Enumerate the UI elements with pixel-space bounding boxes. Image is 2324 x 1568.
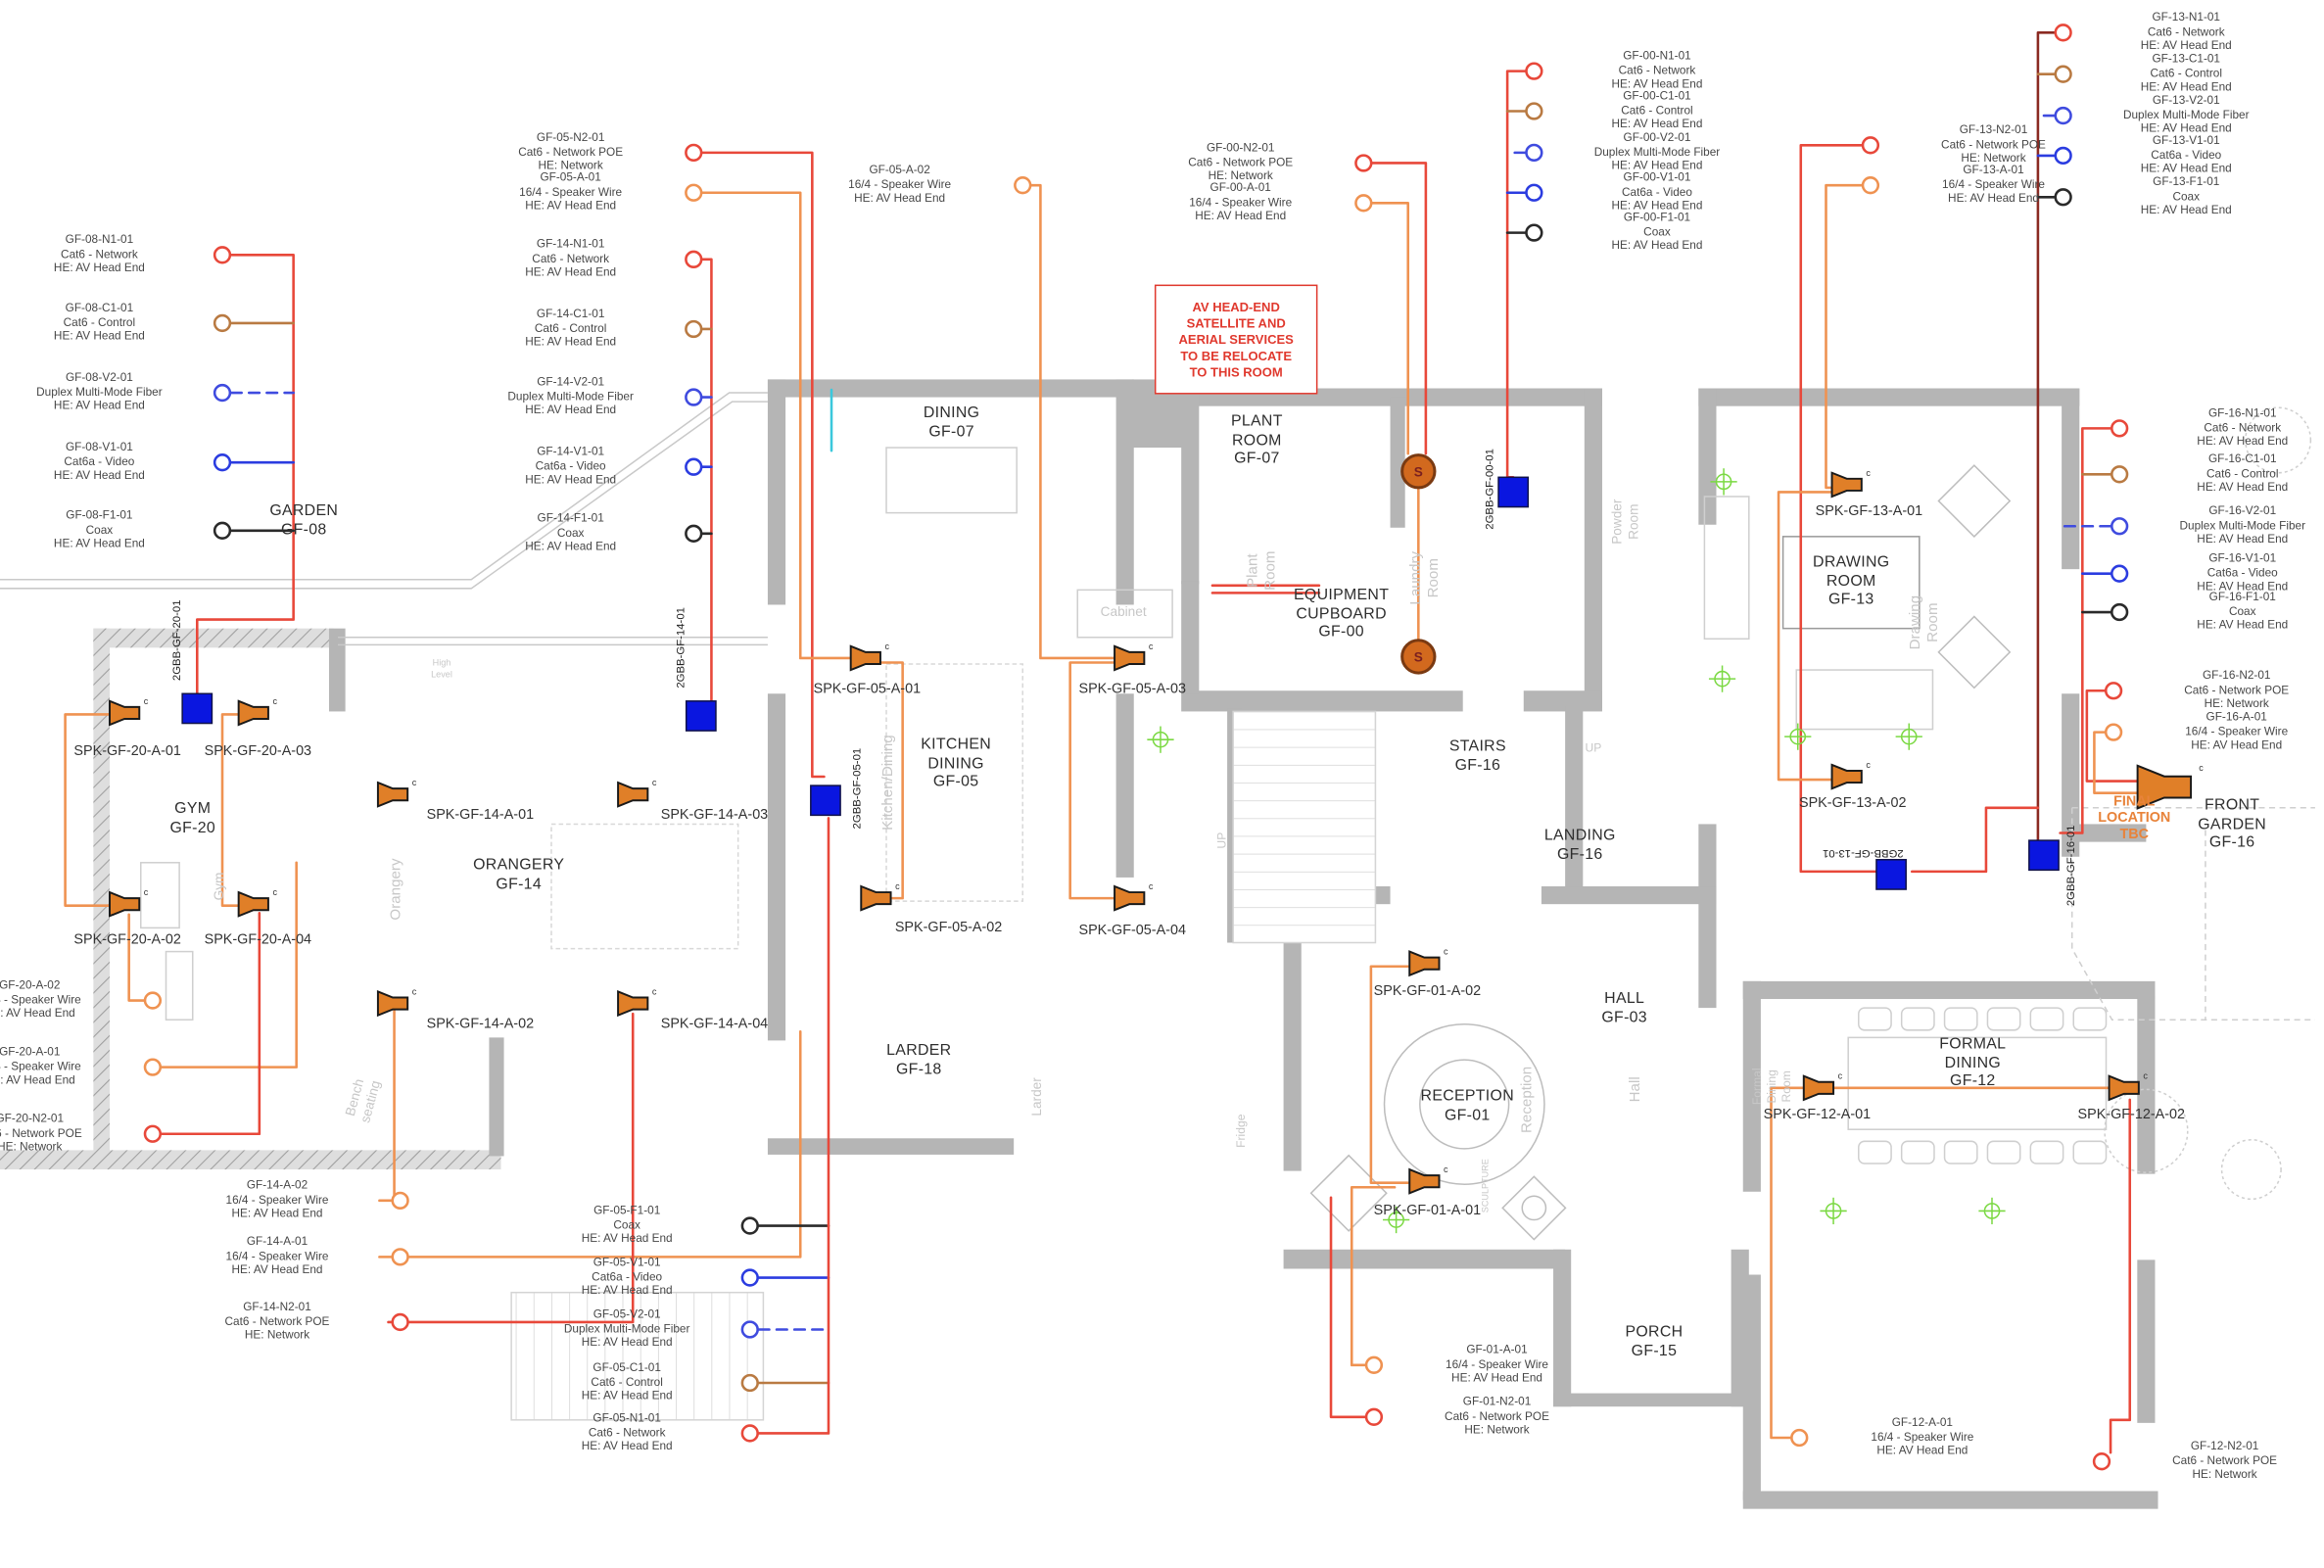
- room-label-line: GF-07: [1231, 450, 1283, 468]
- callout-dest: HE: AV Head End: [0, 1073, 141, 1088]
- speaker-label: SPK-GF-20-A-04: [205, 931, 311, 948]
- callout-id: GF-00-V1-01: [1545, 170, 1768, 185]
- cable-callout: GF-00-F1-01CoaxHE: AV Head End: [1545, 211, 1768, 254]
- room-label-line: GF-01: [1421, 1106, 1514, 1124]
- callout-cable: Duplex Multi-Mode Fiber: [516, 1321, 738, 1336]
- room-label: RECEPTIONGF-01: [1421, 1087, 1514, 1124]
- cable-callout: GF-14-F1-01CoaxHE: AV Head End: [459, 511, 682, 554]
- room-label: PLANTROOMGF-07: [1231, 412, 1283, 468]
- room-label: DININGGF-07: [924, 404, 979, 441]
- cable-callout: GF-01-A-0116/4 - Speaker WireHE: AV Head…: [1386, 1343, 1608, 1386]
- ghost-label-line: Dining: [1765, 1068, 1779, 1105]
- room-label-line: GYM: [169, 799, 215, 818]
- ghost-label-line: Room: [1262, 550, 1280, 590]
- speaker-label: SPK-GF-05-A-02: [895, 920, 1002, 936]
- callout-cable: 16/4 - Speaker Wire: [459, 185, 682, 200]
- cable-callout: GF-05-F1-01CoaxHE: AV Head End: [516, 1204, 738, 1247]
- room-label-line: ROOM: [1231, 431, 1283, 450]
- callout-id: GF-00-N1-01: [1545, 49, 1768, 64]
- speaker-label: SPK-GF-14-A-02: [427, 1016, 534, 1032]
- cable-callout: GF-13-A-0116/4 - Speaker WireHE: AV Head…: [1882, 163, 2105, 206]
- ghost-label-line: Drawing: [1908, 595, 1925, 650]
- room-label-line: DINING: [921, 754, 991, 773]
- room-label-line: LANDING: [1544, 827, 1616, 845]
- callout-cable: Cat6 - Control: [516, 1375, 738, 1390]
- callout-cable: Coax: [2075, 189, 2298, 204]
- ghost-room-label: Kitchen/Dining: [880, 735, 898, 831]
- keypad-panel-label: 2GBB-GF-16-01: [2063, 825, 2077, 906]
- callout-cable: Coax: [2131, 604, 2324, 619]
- ghost-label-line: High: [431, 658, 452, 670]
- cable-callout: GF-12-A-0116/4 - Speaker WireHE: AV Head…: [1811, 1415, 2033, 1458]
- callout-id: GF-16-F1-01: [2131, 590, 2324, 604]
- callout-dest: HE: AV Head End: [0, 261, 211, 276]
- callout-cable: Coax: [1545, 224, 1768, 239]
- callout-dest: HE: AV Head End: [516, 1232, 738, 1247]
- callout-id: GF-12-N2-01: [2113, 1440, 2324, 1454]
- callout-dest: HE: AV Head End: [1129, 210, 1352, 224]
- room-label-line: CUPBOARD: [1294, 604, 1389, 623]
- room-label-line: HALL: [1601, 989, 1647, 1008]
- callout-cable: Cat6 - Control: [2075, 66, 2298, 80]
- callout-id: GF-14-C1-01: [459, 307, 682, 321]
- ghost-label-line: SCULPTURE: [1481, 1159, 1493, 1212]
- cable-callout: GF-14-V2-01Duplex Multi-Mode FiberHE: AV…: [459, 375, 682, 418]
- callout-id: GF-16-V2-01: [2131, 504, 2324, 519]
- callout-cable: Cat6a - Video: [1545, 185, 1768, 200]
- callout-cable: Cat6a - Video: [2131, 566, 2324, 581]
- room-label-line: GF-18: [886, 1060, 951, 1078]
- cable-callout: GF-13-N1-01Cat6 - NetworkHE: AV Head End: [2075, 11, 2298, 54]
- callout-dest: HE: AV Head End: [0, 469, 211, 484]
- callout-id: GF-13-V2-01: [2075, 93, 2298, 108]
- room-label: FORMALDININGGF-12: [1939, 1035, 2006, 1091]
- callout-id: GF-16-C1-01: [2131, 452, 2324, 467]
- callout-dest: HE: AV Head End: [1882, 192, 2105, 207]
- cable-callout: GF-13-V1-01Cat6a - VideoHE: AV Head End: [2075, 133, 2298, 176]
- room-label-line: DINING: [1939, 1054, 2006, 1072]
- ghost-room-label: HighLevel: [431, 658, 452, 682]
- callout-cable: 16/4 - Speaker Wire: [0, 1059, 141, 1073]
- callout-dest: HE: AV Head End: [166, 1263, 388, 1278]
- room-label-line: DRAWING: [1813, 553, 1889, 572]
- callout-id: GF-05-V2-01: [516, 1307, 738, 1322]
- callout-id: GF-20-N2-01: [0, 1112, 141, 1126]
- callout-cable: Cat6a - Video: [2075, 148, 2298, 163]
- final-location-line: FINAL: [2098, 793, 2170, 810]
- cable-callout: GF-16-A-0116/4 - Speaker WireHE: AV Head…: [2125, 710, 2324, 753]
- cable-callout: GF-16-V2-01Duplex Multi-Mode FiberHE: AV…: [2131, 504, 2324, 547]
- callout-id: GF-05-F1-01: [516, 1204, 738, 1218]
- keypad-panel-label: 2GBB-GF-20-01: [169, 599, 183, 681]
- final-location-line: TBC: [2098, 827, 2170, 843]
- ghost-room-label: Hall: [1628, 1076, 1645, 1102]
- callout-id: GF-08-V2-01: [0, 370, 211, 385]
- speaker-label: SPK-GF-14-A-04: [661, 1016, 768, 1032]
- callout-dest: HE: Network: [1386, 1423, 1608, 1438]
- room-label-line: GF-16: [1449, 756, 1506, 775]
- ghost-label-line: Cabinet: [1101, 604, 1147, 621]
- callout-cable: Coax: [516, 1217, 738, 1232]
- cable-callout: GF-00-V1-01Cat6a - VideoHE: AV Head End: [1545, 170, 1768, 214]
- ghost-room-label: UP: [1215, 832, 1230, 849]
- callout-dest: HE: AV Head End: [516, 1284, 738, 1299]
- callout-cable: Cat6a - Video: [0, 454, 211, 469]
- callout-cable: Cat6 - Network: [0, 247, 211, 261]
- room-label-line: LARDER: [886, 1041, 951, 1060]
- cable-callout: GF-00-V2-01Duplex Multi-Mode FiberHE: AV…: [1545, 130, 1768, 173]
- cable-callout: GF-08-V1-01Cat6a - VideoHE: AV Head End: [0, 440, 211, 483]
- cable-callout: GF-16-V1-01Cat6a - VideoHE: AV Head End: [2131, 551, 2324, 594]
- note-line: AERIAL SERVICES: [1156, 331, 1315, 348]
- speaker-label: SPK-GF-20-A-02: [73, 931, 180, 948]
- callout-dest: HE: Network: [2125, 697, 2324, 712]
- callout-dest: HE: AV Head End: [459, 199, 682, 214]
- callout-dest: HE: AV Head End: [0, 537, 211, 551]
- callout-cable: 16/4 - Speaker Wire: [1882, 177, 2105, 192]
- speaker-label: SPK-GF-05-A-04: [1078, 923, 1185, 939]
- callout-id: GF-14-N1-01: [459, 237, 682, 252]
- callout-id: GF-13-V1-01: [2075, 133, 2298, 148]
- ghost-room-label: Orangery: [389, 858, 406, 920]
- cable-callout: GF-20-N2-01Cat6 - Network POEHE: Network: [0, 1112, 141, 1155]
- cable-callout: GF-05-V2-01Duplex Multi-Mode FiberHE: AV…: [516, 1307, 738, 1351]
- room-label-line: FRONT: [2198, 796, 2266, 815]
- cable-callout: GF-01-N2-01Cat6 - Network POEHE: Network: [1386, 1395, 1608, 1438]
- ghost-label-line: Plant: [1245, 550, 1262, 590]
- room-label-line: STAIRS: [1449, 737, 1506, 756]
- note-line: TO THIS ROOM: [1156, 364, 1315, 381]
- cable-callout: GF-14-C1-01Cat6 - ControlHE: AV Head End: [459, 307, 682, 350]
- ghost-room-label: Cabinet: [1101, 604, 1147, 621]
- callout-cable: Cat6 - Network POE: [459, 145, 682, 160]
- callout-id: GF-05-C1-01: [516, 1360, 738, 1375]
- cable-callout: GF-00-C1-01Cat6 - ControlHE: AV Head End: [1545, 89, 1768, 132]
- keypad-panel-label: 2GBB-GF-00-01: [1483, 449, 1496, 530]
- room-label: EQUIPMENTCUPBOARDGF-00: [1294, 586, 1389, 641]
- cable-callout: GF-08-N1-01Cat6 - NetworkHE: AV Head End: [0, 233, 211, 276]
- room-label-line: GARDEN: [269, 501, 338, 520]
- callout-dest: HE: AV Head End: [788, 192, 1011, 207]
- callout-cable: Cat6 - Network POE: [0, 1126, 141, 1141]
- cable-callout: GF-14-V1-01Cat6a - VideoHE: AV Head End: [459, 445, 682, 488]
- callout-cable: Duplex Multi-Mode Fiber: [1545, 145, 1768, 160]
- room-label-line: EQUIPMENT: [1294, 586, 1389, 604]
- callout-cable: Cat6 - Network POE: [2125, 683, 2324, 697]
- callout-id: GF-14-A-01: [166, 1235, 388, 1250]
- callout-id: GF-13-N2-01: [1882, 123, 2105, 138]
- callout-dest: HE: AV Head End: [1811, 1444, 2033, 1458]
- callout-id: GF-08-F1-01: [0, 508, 211, 523]
- note-line: AV HEAD-END: [1156, 299, 1315, 315]
- keypad-panel-label: 2GBB-GF-14-01: [674, 607, 688, 689]
- speaker-label: SPK-GF-14-A-01: [427, 807, 534, 824]
- cable-callout: GF-14-A-0216/4 - Speaker WireHE: AV Head…: [166, 1178, 388, 1221]
- callout-id: GF-12-A-01: [1811, 1415, 2033, 1430]
- ghost-label-line: Reception: [1519, 1067, 1537, 1133]
- cable-callout: GF-00-N2-01Cat6 - Network POEHE: Network: [1129, 141, 1352, 184]
- callout-id: GF-14-V1-01: [459, 445, 682, 459]
- room-label: STAIRSGF-16: [1449, 737, 1506, 775]
- cable-callout: GF-14-N1-01Cat6 - NetworkHE: AV Head End: [459, 237, 682, 280]
- room-label-line: GF-15: [1625, 1342, 1683, 1360]
- ghost-label-line: Fridge: [1235, 1115, 1250, 1148]
- callout-id: GF-00-A-01: [1129, 181, 1352, 196]
- callout-cable: Cat6 - Control: [0, 315, 211, 330]
- callout-cable: Duplex Multi-Mode Fiber: [2075, 108, 2298, 122]
- callout-id: GF-01-A-01: [1386, 1343, 1608, 1357]
- cable-callout: GF-08-C1-01Cat6 - ControlHE: AV Head End: [0, 301, 211, 344]
- ghost-room-label: Benchseating: [342, 1074, 385, 1124]
- ghost-label-line: Gym: [212, 873, 228, 901]
- speaker-label: SPK-GF-01-A-01: [1374, 1203, 1481, 1219]
- ghost-room-label: Larder: [1029, 1077, 1046, 1116]
- cable-callout: GF-20-A-0116/4 - Speaker WireHE: AV Head…: [0, 1045, 141, 1088]
- floor-plan: cccccccccccccccccccSS GF-08-N1-01Cat6 - …: [0, 0, 2324, 1568]
- room-label: PORCHGF-15: [1625, 1323, 1683, 1360]
- cable-callout: GF-05-V1-01Cat6a - VideoHE: AV Head End: [516, 1256, 738, 1299]
- cable-callout: GF-16-N1-01Cat6 - NetworkHE: AV Head End: [2131, 406, 2324, 450]
- callout-dest: HE: AV Head End: [2131, 618, 2324, 633]
- cable-callout: GF-13-N2-01Cat6 - Network POEHE: Network: [1882, 123, 2105, 166]
- callout-dest: HE: Network: [166, 1328, 388, 1343]
- ghost-label-line: Formal: [1750, 1068, 1765, 1105]
- callout-cable: 16/4 - Speaker Wire: [1129, 195, 1352, 210]
- room-label-line: PLANT: [1231, 412, 1283, 431]
- callout-id: GF-05-N1-01: [516, 1411, 738, 1426]
- callout-cable: Duplex Multi-Mode Fiber: [459, 389, 682, 404]
- callout-id: GF-13-F1-01: [2075, 175, 2298, 190]
- callout-id: GF-08-C1-01: [0, 301, 211, 315]
- ghost-room-label: Fridge: [1235, 1115, 1250, 1148]
- cable-callout: GF-16-N2-01Cat6 - Network POEHE: Network: [2125, 669, 2324, 712]
- callout-dest: HE: AV Head End: [0, 1007, 141, 1022]
- ghost-label-line: Larder: [1029, 1077, 1046, 1116]
- cable-callout: GF-05-N2-01Cat6 - Network POEHE: Network: [459, 130, 682, 173]
- callout-dest: HE: AV Head End: [2125, 738, 2324, 753]
- callout-cable: 16/4 - Speaker Wire: [788, 177, 1011, 192]
- room-label-line: RECEPTION: [1421, 1087, 1514, 1106]
- callout-cable: Duplex Multi-Mode Fiber: [2131, 518, 2324, 533]
- ghost-room-label: PlantRoom: [1245, 550, 1280, 590]
- final-location-note: FINALLOCATIONTBC: [2098, 793, 2170, 842]
- room-label: FRONTGARDENGF-16: [2198, 796, 2266, 852]
- callout-dest: HE: AV Head End: [1386, 1371, 1608, 1386]
- cable-callout: GF-13-V2-01Duplex Multi-Mode FiberHE: AV…: [2075, 93, 2298, 136]
- cable-callout: GF-00-N1-01Cat6 - NetworkHE: AV Head End: [1545, 49, 1768, 92]
- callout-dest: HE: AV Head End: [2131, 435, 2324, 450]
- room-label-line: GF-07: [924, 422, 979, 441]
- cable-callout: GF-20-A-0216/4 - Speaker WireHE: AV Head…: [0, 978, 141, 1022]
- keypad-panel-label: 2GBB-GF-05-01: [850, 748, 864, 830]
- ghost-room-label: Reception: [1519, 1067, 1537, 1133]
- speaker-label: SPK-GF-12-A-02: [2078, 1107, 2185, 1123]
- callout-dest: HE: AV Head End: [516, 1440, 738, 1454]
- callout-id: GF-00-F1-01: [1545, 211, 1768, 225]
- room-label-line: GF-00: [1294, 623, 1389, 641]
- callout-id: GF-16-A-01: [2125, 710, 2324, 725]
- callout-cable: Cat6a - Video: [459, 459, 682, 474]
- callout-id: GF-05-A-01: [459, 170, 682, 185]
- ghost-room-label: FormalDiningRoom: [1750, 1068, 1794, 1105]
- callout-id: GF-16-V1-01: [2131, 551, 2324, 566]
- ghost-label-line: Level: [431, 670, 452, 682]
- callout-id: GF-16-N2-01: [2125, 669, 2324, 684]
- ghost-label-line: Room: [1925, 595, 1943, 650]
- room-label-line: ROOM: [1813, 572, 1889, 591]
- cable-callout: GF-14-N2-01Cat6 - Network POEHE: Network: [166, 1300, 388, 1343]
- callout-cable: Cat6 - Network POE: [1129, 155, 1352, 169]
- cable-callout: GF-00-A-0116/4 - Speaker WireHE: AV Head…: [1129, 181, 1352, 224]
- callout-id: GF-08-V1-01: [0, 440, 211, 454]
- ghost-room-label: DrawingRoom: [1908, 595, 1943, 650]
- callout-cable: Cat6 - Network: [1545, 63, 1768, 77]
- callout-dest: HE: AV Head End: [459, 404, 682, 418]
- callout-id: GF-14-A-02: [166, 1178, 388, 1193]
- callout-dest: HE: AV Head End: [1545, 118, 1768, 132]
- callout-cable: 16/4 - Speaker Wire: [2125, 724, 2324, 738]
- cable-callout: GF-05-A-0216/4 - Speaker WireHE: AV Head…: [788, 163, 1011, 206]
- callout-id: GF-13-A-01: [1882, 163, 2105, 177]
- ghost-label-line: Room: [1626, 499, 1642, 545]
- callout-cable: Cat6 - Network POE: [1386, 1409, 1608, 1424]
- speaker-label: SPK-GF-13-A-01: [1816, 503, 1922, 520]
- callout-dest: HE: AV Head End: [459, 265, 682, 280]
- ghost-label-line: UP: [1585, 741, 1601, 756]
- ghost-label-line: Room: [1780, 1068, 1795, 1105]
- callout-dest: HE: AV Head End: [2075, 204, 2298, 218]
- label-layer: GF-08-N1-01Cat6 - NetworkHE: AV Head End…: [0, 0, 2324, 1568]
- callout-dest: HE: AV Head End: [2075, 162, 2298, 176]
- callout-id: GF-13-N1-01: [2075, 11, 2298, 25]
- ghost-label-line: Laundry: [1408, 551, 1426, 605]
- callout-dest: HE: AV Head End: [2131, 533, 2324, 547]
- room-label-line: GF-12: [1939, 1072, 2006, 1091]
- room-label-line: GARDEN: [2198, 815, 2266, 833]
- callout-dest: HE: AV Head End: [0, 329, 211, 344]
- note-line: TO BE RELOCATE: [1156, 348, 1315, 364]
- callout-cable: Cat6 - Network: [2075, 24, 2298, 39]
- callout-id: GF-14-V2-01: [459, 375, 682, 390]
- room-label: HALLGF-03: [1601, 989, 1647, 1026]
- callout-id: GF-14-N2-01: [166, 1300, 388, 1314]
- cable-callout: GF-05-N1-01Cat6 - NetworkHE: AV Head End: [516, 1411, 738, 1454]
- room-label-line: GF-14: [473, 875, 564, 893]
- ghost-label-line: UP: [1215, 832, 1230, 849]
- ghost-room-label: Gym: [212, 873, 228, 901]
- speaker-label: SPK-GF-05-A-03: [1078, 681, 1185, 697]
- speaker-label: SPK-GF-01-A-02: [1374, 983, 1481, 1000]
- callout-id: GF-05-N2-01: [459, 130, 682, 145]
- callout-dest: HE: AV Head End: [459, 473, 682, 488]
- note-line: SATELLITE AND: [1156, 315, 1315, 332]
- ghost-room-label: PowderRoom: [1610, 499, 1642, 545]
- speaker-label: SPK-GF-20-A-01: [73, 743, 180, 760]
- callout-dest: HE: Network: [0, 1140, 141, 1155]
- cable-callout: GF-16-F1-01CoaxHE: AV Head End: [2131, 590, 2324, 633]
- callout-dest: HE: AV Head End: [516, 1389, 738, 1403]
- cable-callout: GF-16-C1-01Cat6 - ControlHE: AV Head End: [2131, 452, 2324, 496]
- callout-cable: Coax: [0, 523, 211, 538]
- callout-id: GF-20-A-01: [0, 1045, 141, 1060]
- callout-dest: HE: AV Head End: [166, 1207, 388, 1221]
- room-label-line: GF-05: [921, 773, 991, 791]
- room-label: KITCHENDININGGF-05: [921, 736, 991, 791]
- room-label-line: GF-13: [1813, 591, 1889, 609]
- callout-id: GF-20-A-02: [0, 978, 141, 993]
- room-label-line: GF-20: [169, 818, 215, 836]
- callout-id: GF-01-N2-01: [1386, 1395, 1608, 1409]
- ghost-label-line: Room: [1426, 551, 1444, 605]
- ghost-room-label: UP: [1585, 741, 1601, 756]
- callout-cable: Cat6 - Network: [459, 252, 682, 266]
- callout-cable: Cat6 - Control: [459, 321, 682, 336]
- callout-cable: Cat6 - Network: [516, 1425, 738, 1440]
- callout-id: GF-00-C1-01: [1545, 89, 1768, 104]
- room-label: LARDERGF-18: [886, 1041, 951, 1078]
- ghost-label-line: Orangery: [389, 858, 406, 920]
- callout-cable: 16/4 - Speaker Wire: [1811, 1430, 2033, 1445]
- cable-callout: GF-08-F1-01CoaxHE: AV Head End: [0, 508, 211, 551]
- callout-cable: Duplex Multi-Mode Fiber: [0, 385, 211, 400]
- room-label-line: GF-16: [1544, 845, 1616, 864]
- callout-cable: 16/4 - Speaker Wire: [0, 992, 141, 1007]
- relocation-note: AV HEAD-ENDSATELLITE ANDAERIAL SERVICEST…: [1155, 285, 1317, 395]
- callout-dest: HE: AV Head End: [0, 399, 211, 413]
- room-label-line: KITCHEN: [921, 736, 991, 754]
- speaker-label: SPK-GF-13-A-02: [1799, 795, 1906, 812]
- callout-id: GF-00-N2-01: [1129, 141, 1352, 156]
- callout-cable: Cat6 - Network POE: [2113, 1453, 2324, 1468]
- callout-dest: HE: AV Head End: [459, 540, 682, 554]
- keypad-panel-label: 2GBB-GF-13-01: [1823, 847, 1904, 861]
- callout-id: GF-05-A-02: [788, 163, 1011, 177]
- callout-cable: 16/4 - Speaker Wire: [166, 1193, 388, 1208]
- callout-dest: HE: AV Head End: [1545, 239, 1768, 254]
- callout-cable: 16/4 - Speaker Wire: [1386, 1357, 1608, 1372]
- cable-callout: GF-08-V2-01Duplex Multi-Mode FiberHE: AV…: [0, 370, 211, 413]
- room-label-line: GF-03: [1601, 1008, 1647, 1026]
- callout-cable: Cat6 - Control: [2131, 466, 2324, 481]
- ghost-room-label: SCULPTURE: [1481, 1159, 1493, 1212]
- callout-dest: HE: AV Head End: [459, 335, 682, 350]
- cable-callout: GF-05-A-0116/4 - Speaker WireHE: AV Head…: [459, 170, 682, 214]
- callout-id: GF-05-V1-01: [516, 1256, 738, 1270]
- callout-id: GF-13-C1-01: [2075, 52, 2298, 67]
- room-label-line: FORMAL: [1939, 1035, 2006, 1054]
- cable-callout: GF-13-F1-01CoaxHE: AV Head End: [2075, 175, 2298, 218]
- room-label-line: GF-16: [2198, 833, 2266, 852]
- room-label: GARDENGF-08: [269, 501, 338, 539]
- speaker-label: SPK-GF-12-A-01: [1764, 1107, 1871, 1123]
- room-label: LANDINGGF-16: [1544, 827, 1616, 864]
- callout-cable: 16/4 - Speaker Wire: [166, 1249, 388, 1263]
- callout-cable: Cat6a - Video: [516, 1269, 738, 1284]
- room-label-line: GF-08: [269, 520, 338, 539]
- speaker-label: SPK-GF-20-A-03: [205, 743, 311, 760]
- speaker-label: SPK-GF-05-A-01: [814, 681, 921, 697]
- cable-callout: GF-14-A-0116/4 - Speaker WireHE: AV Head…: [166, 1235, 388, 1278]
- ghost-label-line: Powder: [1610, 499, 1627, 545]
- ghost-label-line: Hall: [1628, 1076, 1645, 1102]
- speaker-label: SPK-GF-14-A-03: [661, 807, 768, 824]
- ghost-room-label: LaundryRoom: [1408, 551, 1444, 605]
- callout-id: GF-14-F1-01: [459, 511, 682, 526]
- callout-dest: HE: AV Head End: [516, 1336, 738, 1351]
- callout-cable: Cat6 - Control: [1545, 103, 1768, 118]
- callout-cable: Cat6 - Network POE: [166, 1314, 388, 1329]
- room-label: ORANGERYGF-14: [473, 856, 564, 893]
